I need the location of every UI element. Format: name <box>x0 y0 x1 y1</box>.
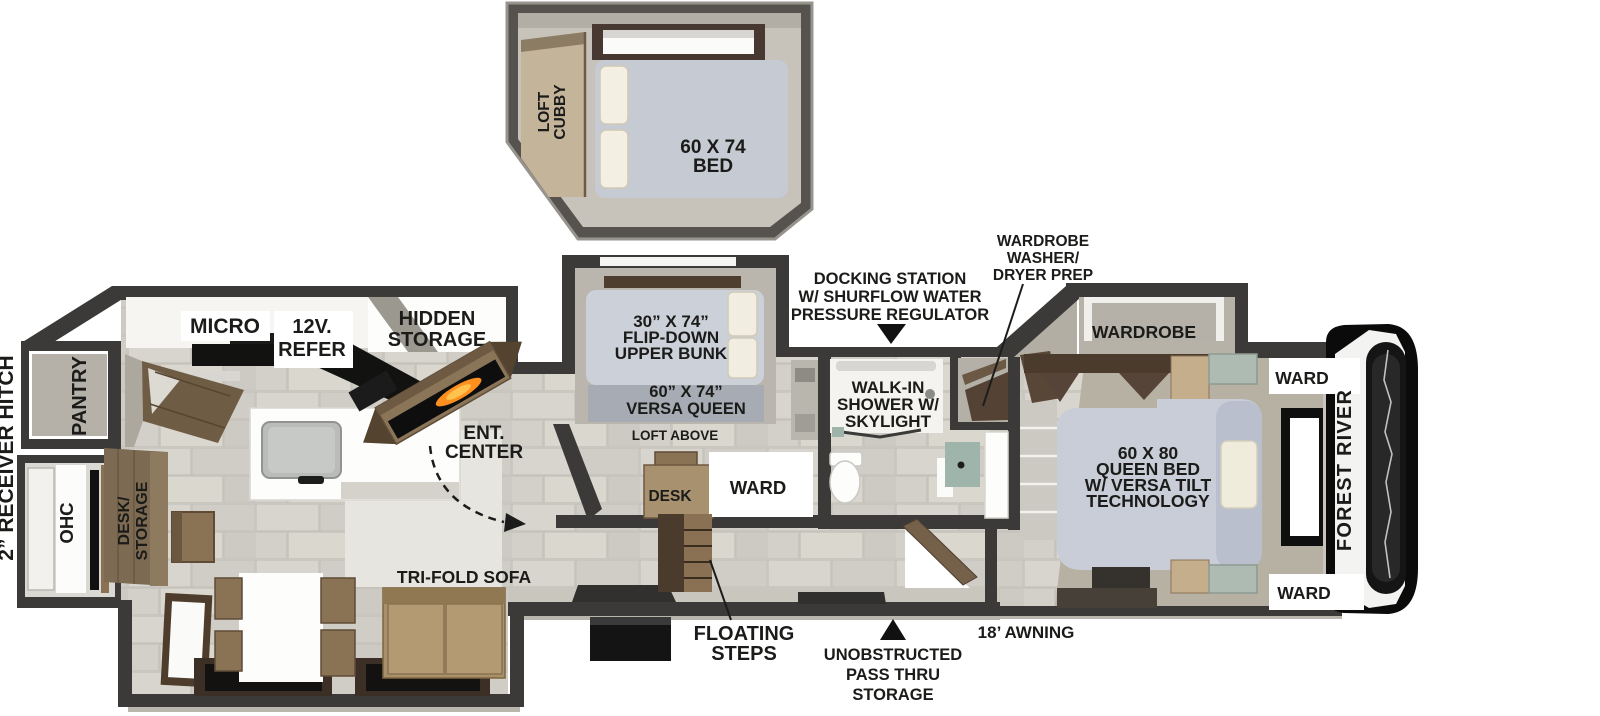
svg-text:60” X 74”: 60” X 74” <box>649 383 722 401</box>
svg-text:2” RECEIVER HITCH: 2” RECEIVER HITCH <box>0 355 18 560</box>
svg-text:DRYER PREP: DRYER PREP <box>993 267 1093 284</box>
svg-text:STORAGE: STORAGE <box>852 686 933 704</box>
svg-text:HIDDEN: HIDDEN <box>399 308 476 330</box>
svg-text:PANTRY: PANTRY <box>69 355 91 436</box>
svg-text:CENTER: CENTER <box>445 442 523 463</box>
svg-text:DESK: DESK <box>648 488 692 505</box>
svg-text:WASHER/: WASHER/ <box>1007 250 1080 267</box>
svg-text:FLOATING: FLOATING <box>694 623 795 645</box>
svg-text:STORAGE: STORAGE <box>388 329 487 351</box>
svg-text:CUBBY: CUBBY <box>552 84 569 140</box>
svg-text:UPPER BUNK: UPPER BUNK <box>615 344 728 363</box>
svg-text:DOCKING STATION: DOCKING STATION <box>814 270 966 288</box>
svg-text:60 X 74: 60 X 74 <box>680 137 746 158</box>
svg-text:LOFT: LOFT <box>536 91 553 132</box>
svg-text:18’ AWNING: 18’ AWNING <box>978 623 1075 642</box>
svg-text:W/ SHURFLOW WATER: W/ SHURFLOW WATER <box>799 288 982 306</box>
svg-text:MICRO: MICRO <box>190 315 260 338</box>
svg-text:REFER: REFER <box>278 339 346 361</box>
svg-text:WARD: WARD <box>730 477 787 498</box>
svg-text:SKYLIGHT: SKYLIGHT <box>845 412 932 431</box>
svg-text:WARDROBE: WARDROBE <box>1092 322 1196 342</box>
svg-text:BED: BED <box>693 156 733 177</box>
svg-text:ENT.: ENT. <box>463 423 504 444</box>
svg-text:WARDROBE: WARDROBE <box>997 233 1089 250</box>
svg-text:LOFT ABOVE: LOFT ABOVE <box>632 428 719 443</box>
svg-text:VERSA QUEEN: VERSA QUEEN <box>626 400 746 418</box>
svg-text:DESK/: DESK/ <box>116 496 133 545</box>
svg-text:12V.: 12V. <box>292 316 331 338</box>
svg-text:WARD: WARD <box>1277 583 1330 603</box>
svg-text:FOREST RIVER: FOREST RIVER <box>1334 389 1356 551</box>
svg-text:PRESSURE REGULATOR: PRESSURE REGULATOR <box>791 306 989 324</box>
svg-text:UNOBSTRUCTED: UNOBSTRUCTED <box>824 646 962 664</box>
svg-text:WARD: WARD <box>1275 368 1328 388</box>
svg-text:OHC: OHC <box>56 502 77 543</box>
svg-text:STORAGE: STORAGE <box>134 481 151 560</box>
svg-text:TECHNOLOGY: TECHNOLOGY <box>1086 491 1210 511</box>
svg-text:TRI-FOLD SOFA: TRI-FOLD SOFA <box>397 567 532 587</box>
svg-text:PASS THRU: PASS THRU <box>846 666 940 684</box>
svg-text:STEPS: STEPS <box>711 643 777 665</box>
